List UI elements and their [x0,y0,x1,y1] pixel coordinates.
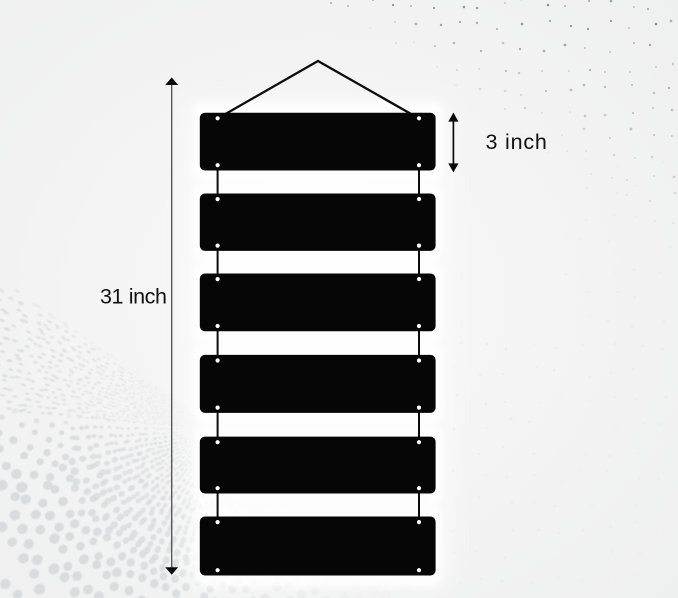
svg-text:31 inch: 31 inch [100,285,167,309]
svg-text:3 inch: 3 inch [486,130,548,154]
